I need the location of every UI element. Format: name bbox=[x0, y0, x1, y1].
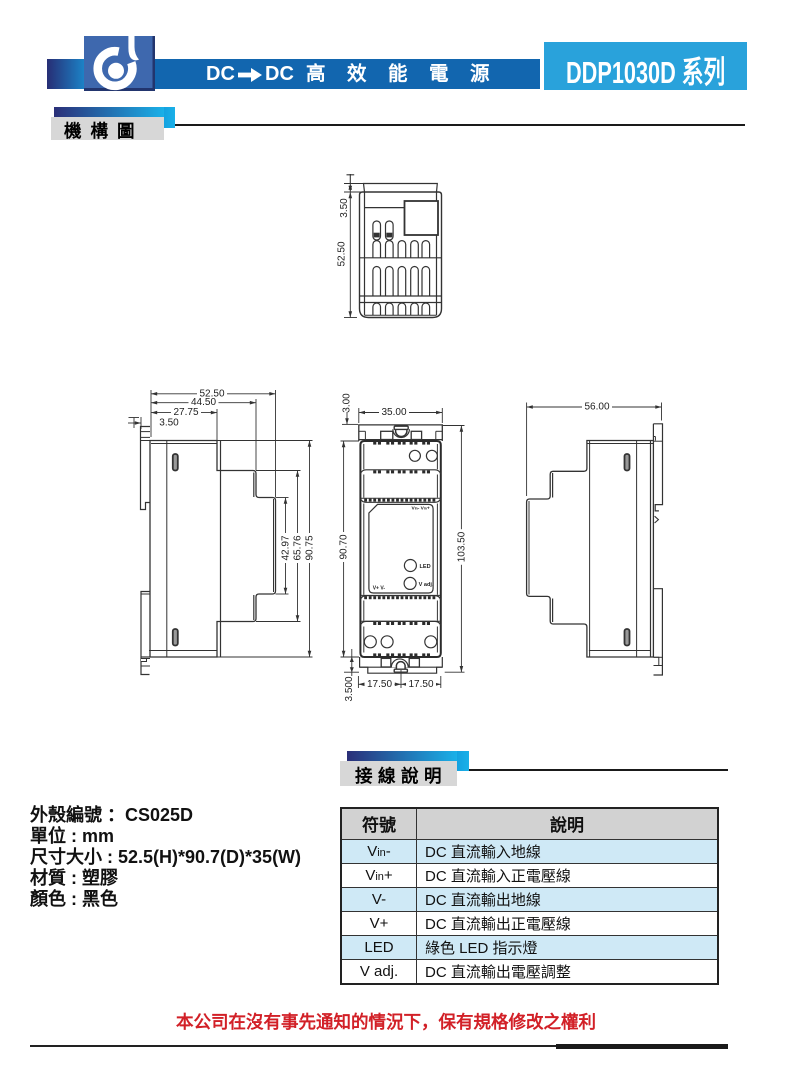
svg-text:52.50: 52.50 bbox=[336, 241, 347, 266]
svg-text:3.00: 3.00 bbox=[342, 393, 353, 413]
svg-text:17.50: 17.50 bbox=[408, 679, 433, 690]
svg-text:90.70: 90.70 bbox=[339, 534, 350, 559]
svg-text:56.00: 56.00 bbox=[584, 402, 609, 413]
svg-text:V adj.: V adj. bbox=[419, 582, 434, 588]
svg-text:42.97: 42.97 bbox=[281, 535, 292, 560]
svg-text:17.50: 17.50 bbox=[367, 679, 392, 690]
svg-text:3.50: 3.50 bbox=[159, 418, 179, 429]
svg-text:3.50: 3.50 bbox=[339, 198, 350, 218]
svg-text:27.75: 27.75 bbox=[173, 407, 198, 418]
svg-text:90.75: 90.75 bbox=[304, 535, 315, 560]
svg-text:Vin- Vin+: Vin- Vin+ bbox=[412, 506, 430, 512]
svg-text:103.50: 103.50 bbox=[456, 531, 467, 562]
svg-text:LED: LED bbox=[420, 564, 431, 570]
svg-text:V+ V-: V+ V- bbox=[373, 585, 386, 591]
svg-text:3.500: 3.500 bbox=[344, 676, 355, 701]
svg-text:35.00: 35.00 bbox=[381, 407, 406, 418]
svg-text:65.76: 65.76 bbox=[293, 535, 304, 560]
